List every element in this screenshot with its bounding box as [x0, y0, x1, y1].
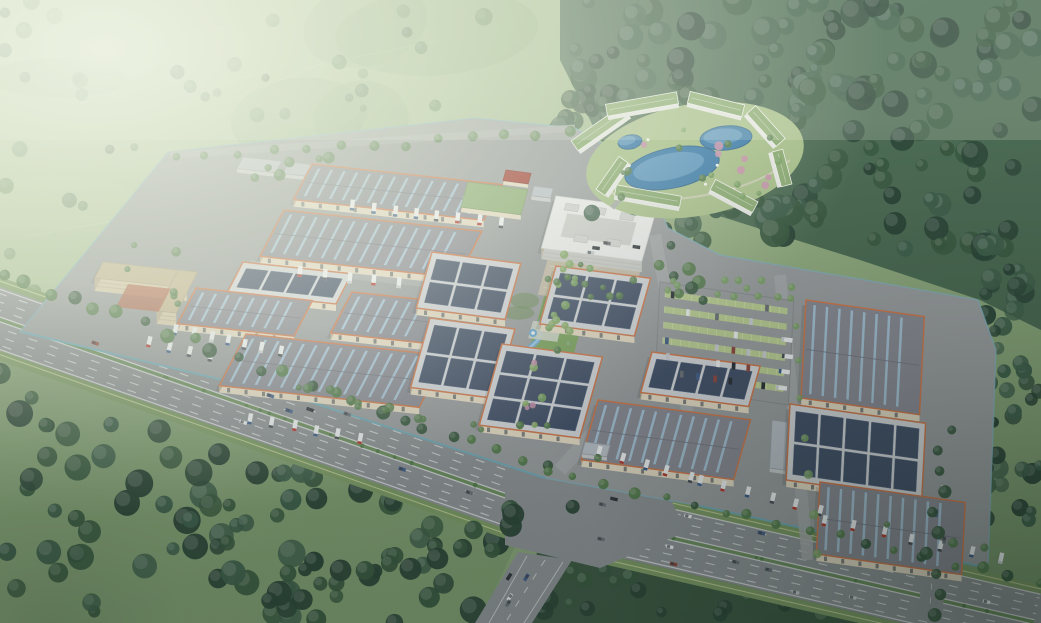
atmosphere-overlays [0, 0, 1041, 623]
aerial-render [0, 0, 1041, 623]
aerial-render-stage [0, 0, 1041, 623]
